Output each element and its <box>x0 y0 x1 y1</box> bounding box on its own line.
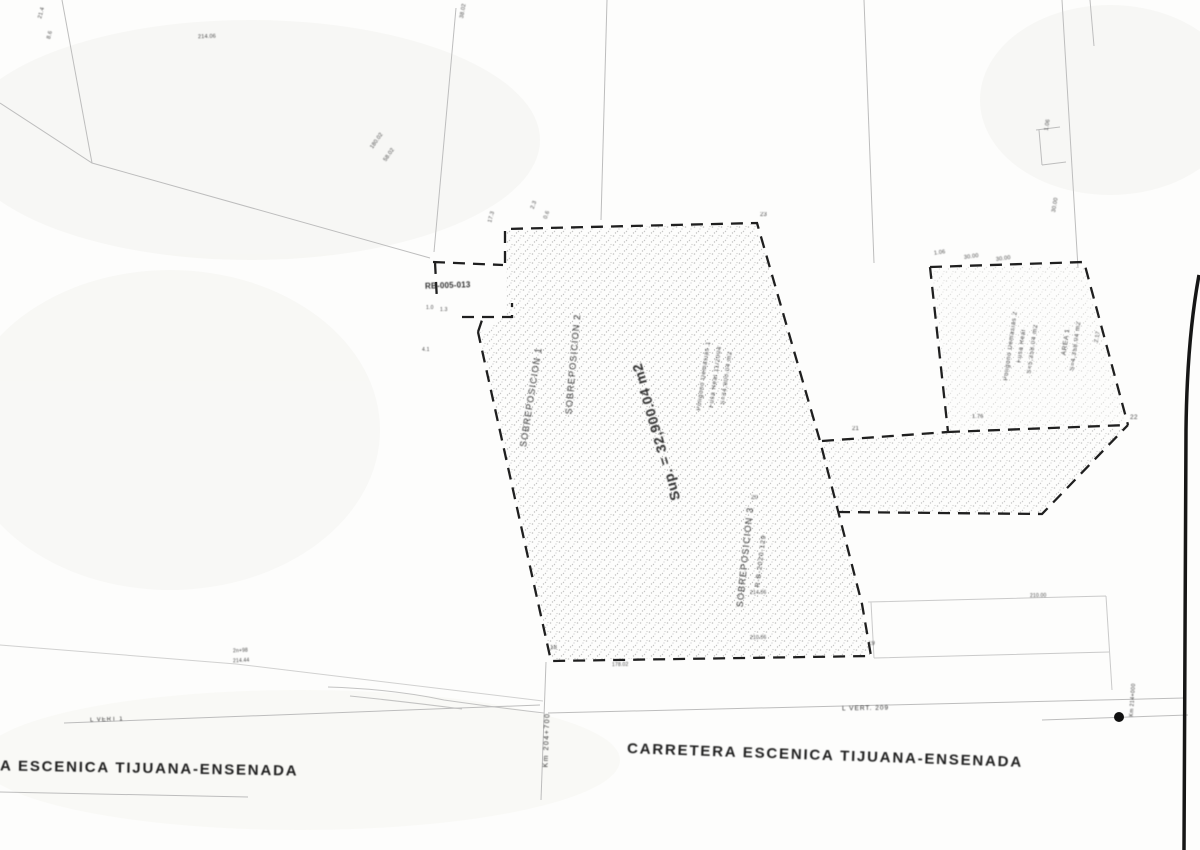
micro-label: 19 <box>868 641 875 647</box>
micro-label: 1.76 <box>972 414 984 420</box>
page-edge-line <box>1184 275 1199 850</box>
scanned-survey-plan: Sup. = 32,900.04 m2 SOBREPOSICION 1 SOBR… <box>0 0 1200 850</box>
micro-label: 210.06 <box>750 635 767 641</box>
parcel-fills <box>479 224 1126 660</box>
micro-label: 4.1 <box>422 347 430 353</box>
micro-label: 23 <box>760 212 767 218</box>
area1-fill <box>931 263 1126 431</box>
survey-plan-drawing <box>0 0 1200 850</box>
station-dot <box>1114 712 1124 722</box>
micro-label: 210.00 <box>1030 593 1047 599</box>
micro-label: 1.0 <box>426 305 434 311</box>
micro-label: 22 <box>1130 414 1138 421</box>
micro-label: 214.06 <box>750 590 767 596</box>
micro-label: 214.06 <box>198 34 216 41</box>
vert-label-left: L VERT 1 <box>90 716 124 723</box>
rb-parcel-id-label: RB-005-013 <box>425 280 471 291</box>
micro-label: 1.3 <box>440 307 448 313</box>
micro-label: 178.02 <box>612 662 629 668</box>
band-fill <box>822 427 1126 513</box>
main-parcel-fill <box>479 224 870 660</box>
micro-label: 18 <box>550 645 557 651</box>
micro-label: 20 <box>751 495 758 501</box>
micro-label: 214.44 <box>233 658 250 665</box>
micro-label: 2n+98 <box>233 648 248 655</box>
micro-label: 21 <box>852 426 859 432</box>
vert-label-right: L VERT. 209 <box>842 705 889 713</box>
